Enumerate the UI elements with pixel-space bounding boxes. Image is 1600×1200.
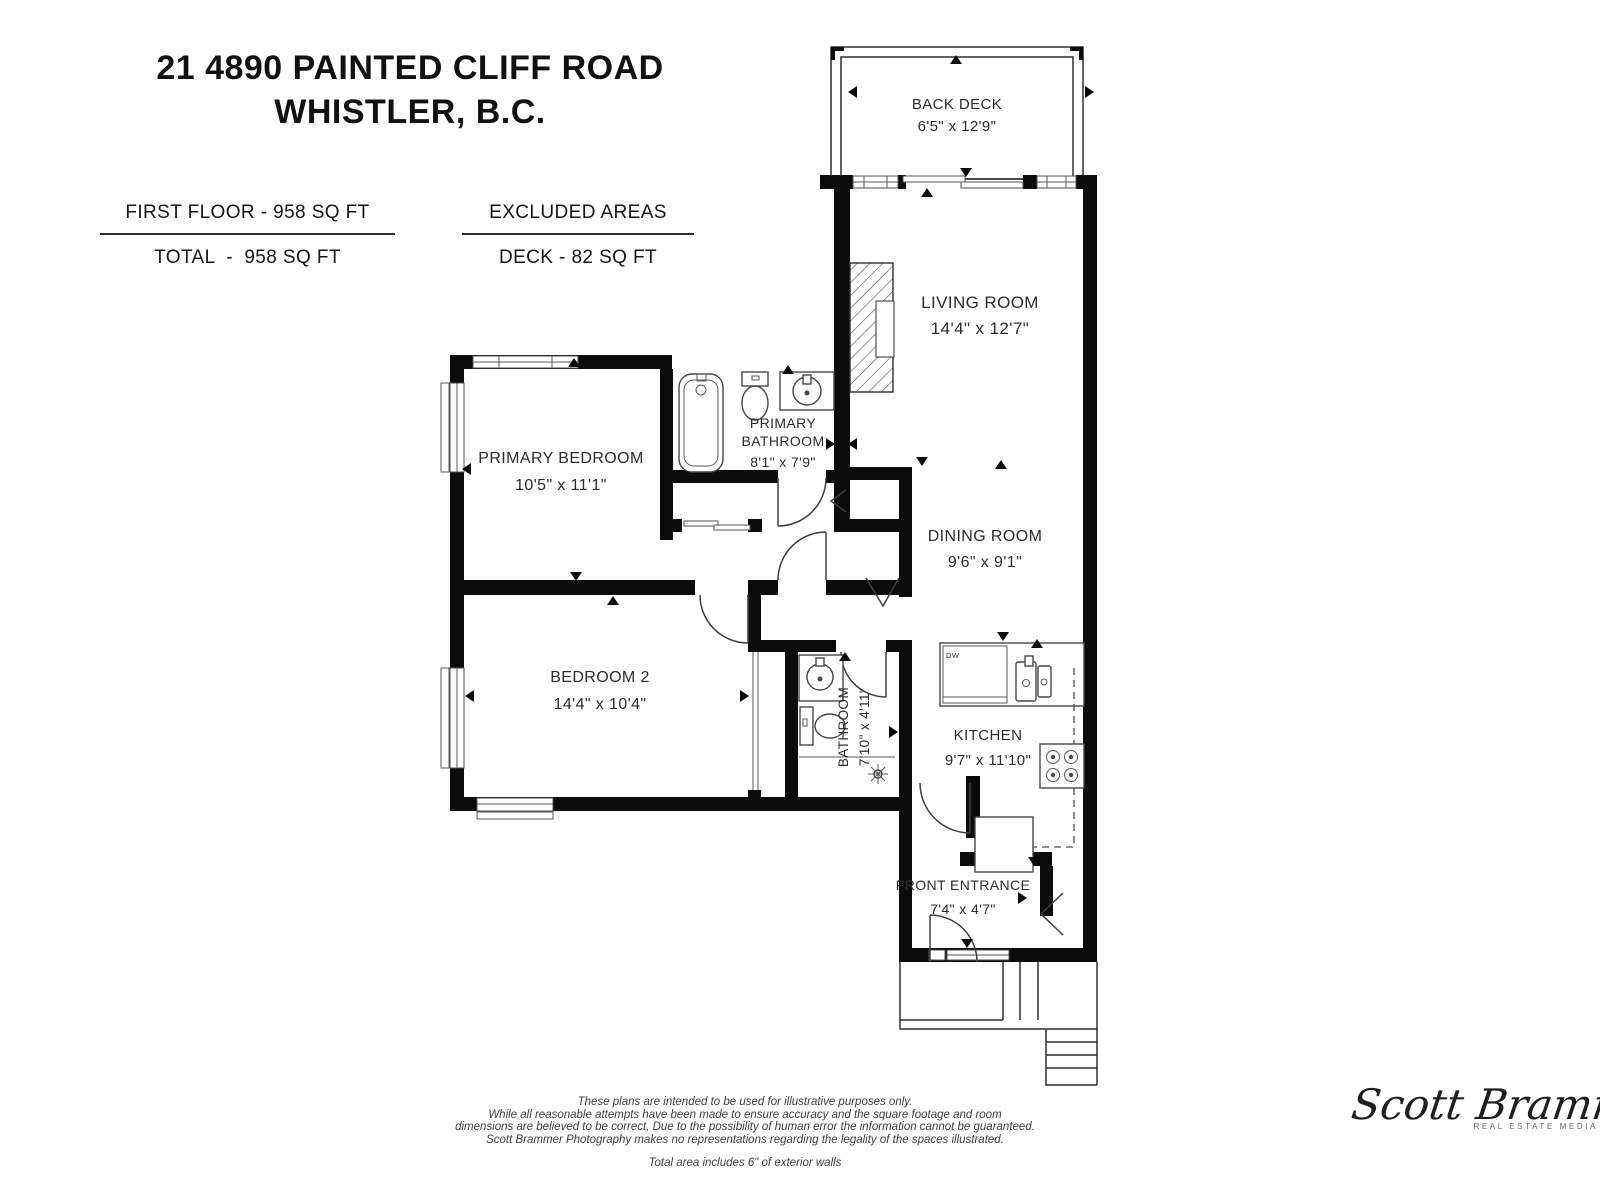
room-dims-primary-bedroom: 10'5" x 11'1" <box>515 477 607 494</box>
room-label-kitchen: KITCHEN <box>954 727 1023 744</box>
kitchen-peninsula <box>975 817 1033 872</box>
window <box>1037 176 1076 188</box>
room-label-bathroom: BATHROOM <box>836 687 851 767</box>
closet-slider <box>684 521 750 530</box>
room-label-front-entrance: FRONT ENTRANCE <box>896 877 1030 893</box>
sink-icon <box>780 372 834 410</box>
disclaimer: These plans are intended to be used for … <box>345 1096 1145 1170</box>
back-deck-outline <box>831 47 1083 179</box>
window <box>477 798 553 819</box>
stairs <box>1046 1029 1097 1085</box>
disclaimer-line: Scott Brammer Photography makes no repre… <box>345 1134 1145 1147</box>
floorplan-page: 21 4890 PAINTED CLIFF ROAD WHISTLER, B.C… <box>0 0 1600 1200</box>
floorplan-drawing: BACK DECK 6'5" x 12'9" LIVING ROOM 14'4"… <box>0 0 1600 1200</box>
stove-icon <box>1040 744 1084 788</box>
disclaimer-line: While all reasonable attempts have been … <box>345 1109 1145 1122</box>
window <box>441 668 464 768</box>
window <box>441 383 464 472</box>
room-dims-bedroom-2: 14'4" x 10'4" <box>554 696 647 713</box>
total-area-note: Total area includes 6" of exterior walls <box>345 1157 1145 1170</box>
window <box>853 176 898 188</box>
sliding-door <box>903 176 1023 188</box>
room-label-living-room: LIVING ROOM <box>921 293 1039 312</box>
room-dims-living-room: 14'4" x 12'7" <box>931 319 1029 338</box>
door-arc <box>778 532 826 580</box>
room-label-back-deck: BACK DECK <box>912 96 1002 113</box>
door-arc <box>778 478 826 526</box>
door-arc <box>700 595 748 643</box>
kitchen-counter <box>940 643 1084 706</box>
front-porch <box>900 962 1097 1085</box>
room-label-dining-room: DINING ROOM <box>928 528 1043 545</box>
disclaimer-line: These plans are intended to be used for … <box>345 1096 1145 1109</box>
toilet-icon <box>742 372 768 420</box>
door-threshold <box>929 950 1009 960</box>
room-dims-back-deck: 6'5" x 12'9" <box>918 118 997 135</box>
closet-slider <box>753 652 758 790</box>
logo-signature: Scott Brammer <box>1349 1080 1600 1129</box>
room-dims-dining-room: 9'6" x 9'1" <box>948 554 1022 571</box>
fireplace-icon <box>850 263 894 392</box>
photographer-logo: Scott Brammer REAL ESTATE MEDIA <box>1352 1080 1600 1131</box>
room-dims-kitchen: 9'7" x 11'10" <box>945 752 1031 769</box>
room-dims-primary-bathroom: 8'1" x 7'9" <box>750 454 816 470</box>
room-dims-front-entrance: 7'4" x 4'7" <box>930 901 996 917</box>
room-label-bedroom-2: BEDROOM 2 <box>550 669 650 686</box>
room-label-primary-bathroom-1: PRIMARY <box>750 415 817 431</box>
window <box>473 356 578 368</box>
door-arc <box>920 783 970 833</box>
dishwasher-label: DW <box>946 651 960 660</box>
bathtub-icon <box>679 374 723 472</box>
disclaimer-line: dimensions are believed to be correct, D… <box>345 1121 1145 1134</box>
room-label-primary-bathroom-2: BATHROOM <box>741 433 824 449</box>
room-label-primary-bedroom: PRIMARY BEDROOM <box>478 450 643 467</box>
room-dims-bathroom: 7'10" x 4'11" <box>857 688 872 766</box>
